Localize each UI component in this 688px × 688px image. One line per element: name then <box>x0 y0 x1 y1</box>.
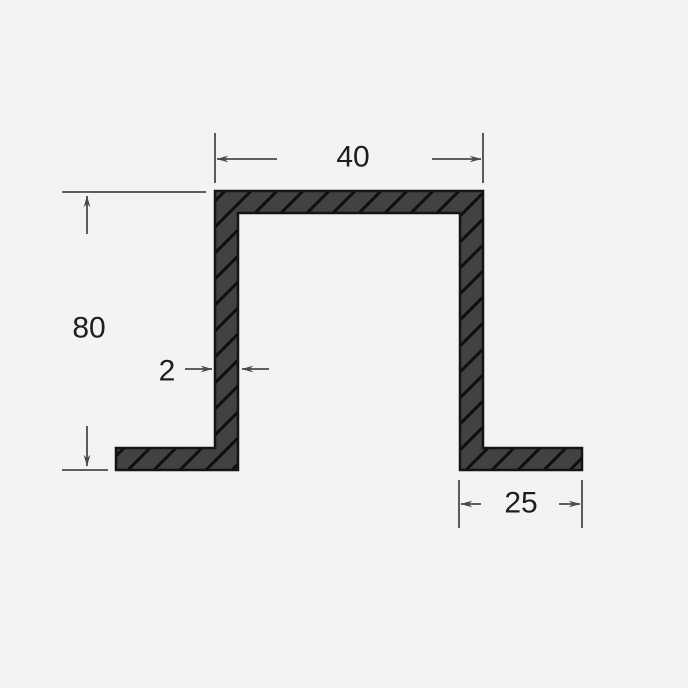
dim-top-width-label: 40 <box>336 141 369 174</box>
profile-diagram: 40 80 2 25 <box>0 0 688 688</box>
dim-thickness-label: 2 <box>159 355 176 388</box>
dim-foot-width-label: 25 <box>504 487 537 520</box>
diagram-canvas: 40 80 2 25 <box>0 0 688 688</box>
dim-height-label: 80 <box>72 312 105 345</box>
